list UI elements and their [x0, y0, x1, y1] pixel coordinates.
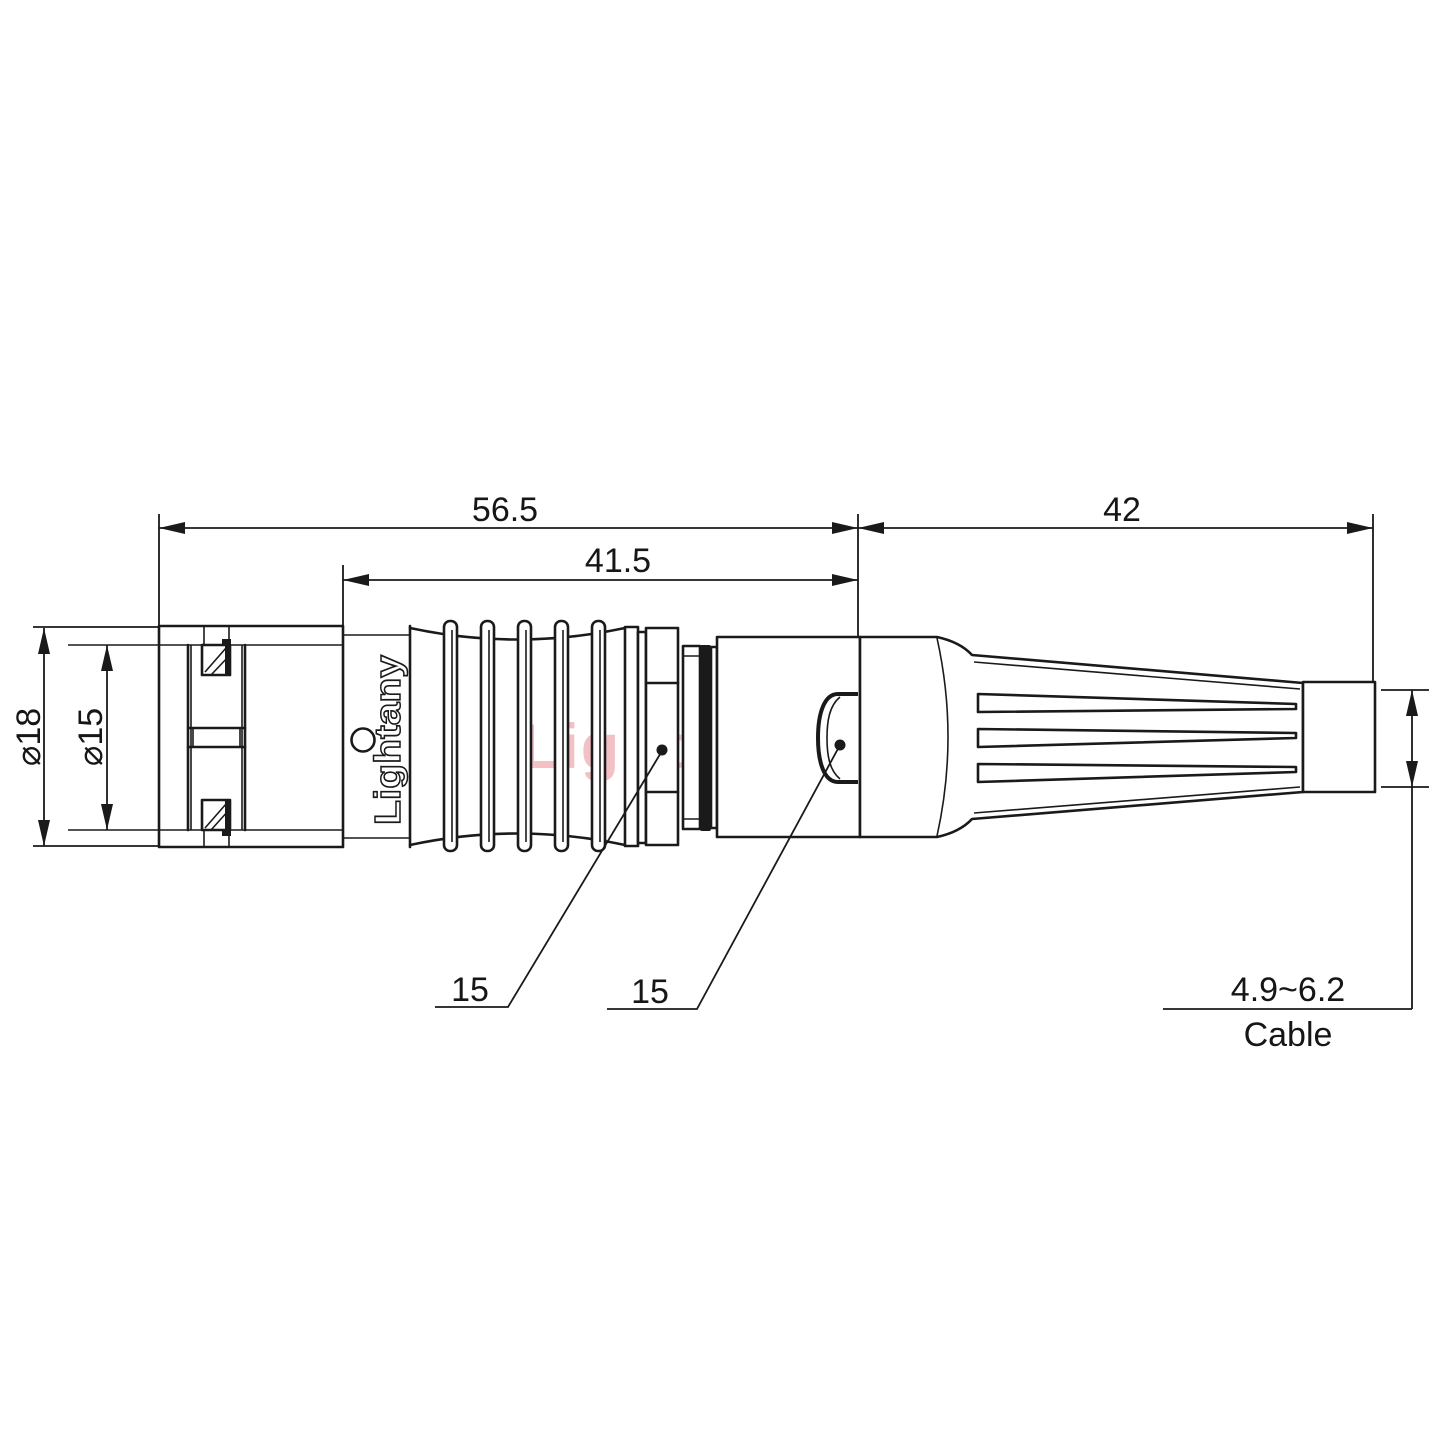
dim-label-front-length: 41.5	[585, 542, 651, 580]
dim-front-length: 41.5	[343, 542, 858, 626]
grip-end-cap	[625, 627, 638, 846]
connector-body: Lightany	[68, 621, 1375, 851]
callout-label-latch: 15	[631, 973, 669, 1011]
dim-label-rear-length: 42	[1103, 491, 1141, 529]
key-block-top	[202, 639, 231, 676]
brand-panel: Lightany	[343, 626, 410, 847]
coupling-nut	[646, 628, 678, 845]
latch-window	[818, 694, 858, 782]
dim-label-inner-diameter: ⌀15	[72, 708, 110, 766]
seal-rings	[683, 645, 717, 831]
back-body	[717, 637, 860, 837]
dim-label-overall-length: 56.5	[472, 491, 538, 529]
dim-label-cable-range: 4.9~6.2	[1231, 971, 1345, 1009]
connector-dimension-drawing: Lightany	[0, 0, 1440, 1440]
grip-rib	[555, 621, 568, 851]
grip-rib	[444, 621, 457, 851]
callout-label-nut: 15	[451, 971, 489, 1009]
brand-label: Lightany	[367, 655, 408, 825]
drawing-canvas: Lightany	[0, 0, 1440, 1440]
grip-rib	[592, 621, 605, 851]
grip-rib	[518, 621, 531, 851]
leader-dot	[835, 740, 846, 751]
dim-overall-length: 56.5	[159, 491, 858, 637]
dim-label-outer-diameter: ⌀18	[10, 708, 48, 766]
leader-dot	[657, 745, 668, 756]
grip-rib	[481, 621, 494, 851]
cable-tube	[1303, 682, 1375, 792]
strain-relief-boot	[860, 637, 1303, 837]
key-block-bottom	[202, 799, 231, 836]
dim-inner-diameter: ⌀15	[72, 645, 113, 830]
dim-label-cable: Cable	[1244, 1016, 1333, 1054]
gasket	[700, 645, 711, 831]
